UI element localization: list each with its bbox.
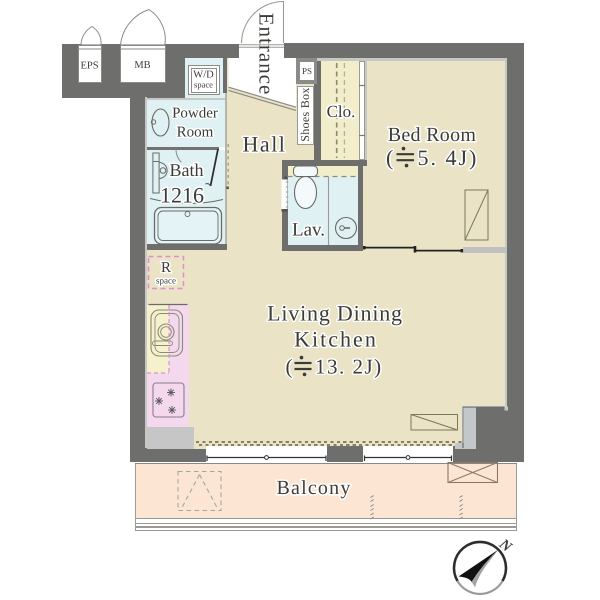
svg-text:(: (: [286, 355, 293, 379]
svg-text:13. 2J): 13. 2J): [315, 355, 383, 379]
svg-text:Powder: Powder: [172, 106, 218, 122]
svg-text:Kitchen: Kitchen: [294, 327, 378, 352]
svg-text:Lav.: Lav.: [292, 220, 325, 241]
svg-text:R: R: [161, 260, 171, 276]
svg-text:1216: 1216: [160, 183, 204, 208]
svg-text:Bed Room: Bed Room: [388, 124, 477, 146]
svg-text:space: space: [194, 80, 213, 90]
svg-text:PS: PS: [302, 66, 312, 76]
svg-text:Balcony: Balcony: [276, 477, 351, 499]
svg-text:MB: MB: [134, 60, 150, 71]
svg-text:(: (: [386, 145, 393, 170]
svg-text:space: space: [156, 276, 176, 286]
svg-text:Hall: Hall: [243, 132, 287, 157]
svg-text:Clo.: Clo.: [327, 102, 356, 121]
svg-text:Room: Room: [177, 125, 214, 141]
svg-text:EPS: EPS: [80, 61, 98, 72]
svg-text:Living Dining: Living Dining: [267, 301, 403, 326]
svg-text:5. 4J): 5. 4J): [418, 145, 479, 170]
svg-text:Bath: Bath: [170, 160, 204, 180]
